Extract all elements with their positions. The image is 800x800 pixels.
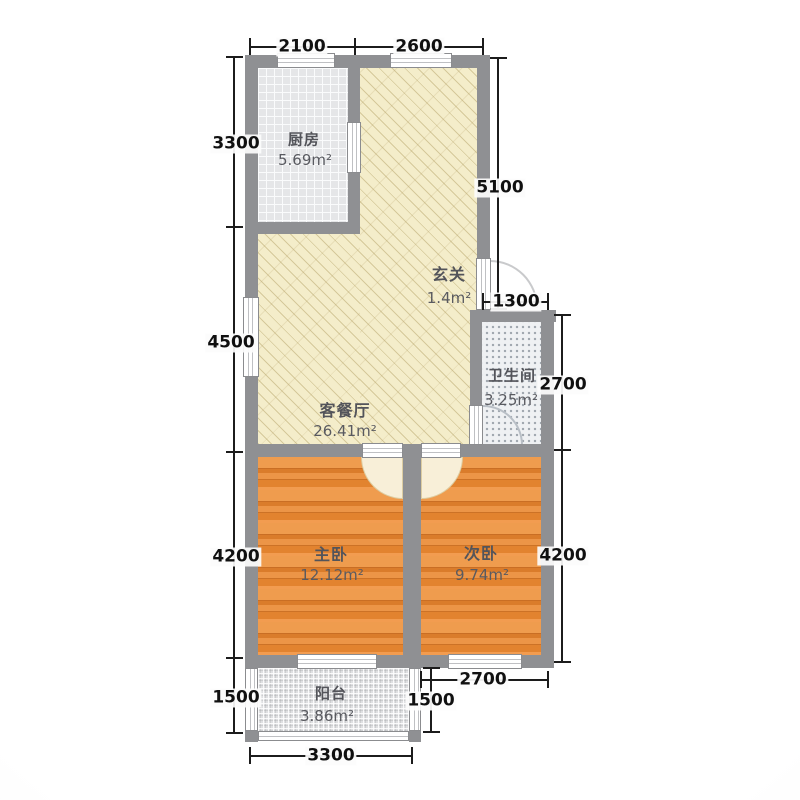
floor-plan: 2100 2600 3300 4500 4200 1500 5100 1300 … <box>0 0 800 800</box>
wall-left-lower <box>245 377 258 668</box>
tick <box>547 293 549 310</box>
master-door-frame <box>362 443 403 458</box>
wall-kitchen-bottom <box>245 222 360 234</box>
bathroom-door-frame <box>469 405 483 445</box>
wall-right-upper <box>477 55 490 258</box>
kitchen-door-frame <box>347 122 361 173</box>
balcony-bottom-window <box>258 731 409 741</box>
master-area: 12.12m² <box>300 566 364 584</box>
tick <box>354 38 356 55</box>
living-area: 26.41m² <box>313 422 377 440</box>
tick <box>554 449 571 451</box>
tick <box>249 38 251 55</box>
tick <box>482 38 484 55</box>
tick <box>226 226 243 228</box>
dim-2700-bottom: 2700 <box>457 671 508 690</box>
dim-1300-bath: 1300 <box>490 293 541 312</box>
wall-bedroom-divider <box>403 457 421 655</box>
dim-4200-right: 4200 <box>537 547 588 566</box>
master-label: 主卧 <box>314 541 348 565</box>
wall-bottom-a <box>245 655 297 668</box>
wall-kitchen-right-b <box>348 173 360 222</box>
bathroom-label: 卫生间 <box>488 365 536 386</box>
living-label: 客餐厅 <box>319 397 370 421</box>
dim-2700-bath: 2700 <box>537 376 588 395</box>
balcony-corner-right <box>409 731 421 742</box>
living-floor-upper <box>360 68 477 444</box>
bathroom-area: 3.25m² <box>484 391 538 409</box>
tick <box>226 451 243 453</box>
dim-line-right <box>561 315 563 662</box>
second-door-frame <box>421 443 461 458</box>
wall-mid-a <box>245 444 362 457</box>
wall-bottom-c <box>522 655 554 668</box>
tick <box>554 314 571 316</box>
second-label: 次卧 <box>464 540 498 564</box>
wall-kitchen-right-a <box>348 68 360 122</box>
dim-3300-bottom: 3300 <box>305 747 356 766</box>
dim-3300-left: 3300 <box>210 135 261 154</box>
balcony-label: 阳台 <box>315 683 347 704</box>
wall-mid-b <box>461 444 554 457</box>
balcony-corner-left <box>245 731 258 742</box>
kitchen-area: 5.69m² <box>278 151 332 169</box>
entry-area: 1.4m² <box>427 289 471 307</box>
tick <box>249 747 251 764</box>
second-area: 9.74m² <box>455 566 509 584</box>
tick <box>423 667 440 669</box>
wall-bath-top <box>470 310 556 322</box>
second-bottom-window <box>448 654 522 669</box>
tick <box>554 661 571 663</box>
tick <box>423 731 440 733</box>
dim-2100: 2100 <box>276 38 327 57</box>
tick <box>226 732 243 734</box>
dim-5100-right: 5100 <box>474 179 525 198</box>
entry-label: 玄关 <box>432 261 466 285</box>
wall-bath-left <box>470 322 482 405</box>
master-bottom-window <box>297 654 377 669</box>
dim-2600: 2600 <box>393 38 444 57</box>
dim-4500-left: 4500 <box>205 334 256 353</box>
tick <box>482 293 484 310</box>
tick <box>547 671 549 688</box>
wall-mid-pillar <box>403 444 421 457</box>
tick <box>411 747 413 764</box>
dim-line-left <box>233 57 235 733</box>
balcony-area: 3.86m² <box>300 707 354 725</box>
tick <box>226 657 243 659</box>
dim-1500-mid: 1500 <box>405 692 456 711</box>
tick <box>420 671 422 688</box>
wall-left-upper <box>245 55 258 297</box>
tick <box>226 56 243 58</box>
tick <box>490 57 507 59</box>
dim-1500-left: 1500 <box>210 689 261 708</box>
kitchen-label: 厨房 <box>288 129 320 150</box>
dim-4200-left: 4200 <box>210 548 261 567</box>
